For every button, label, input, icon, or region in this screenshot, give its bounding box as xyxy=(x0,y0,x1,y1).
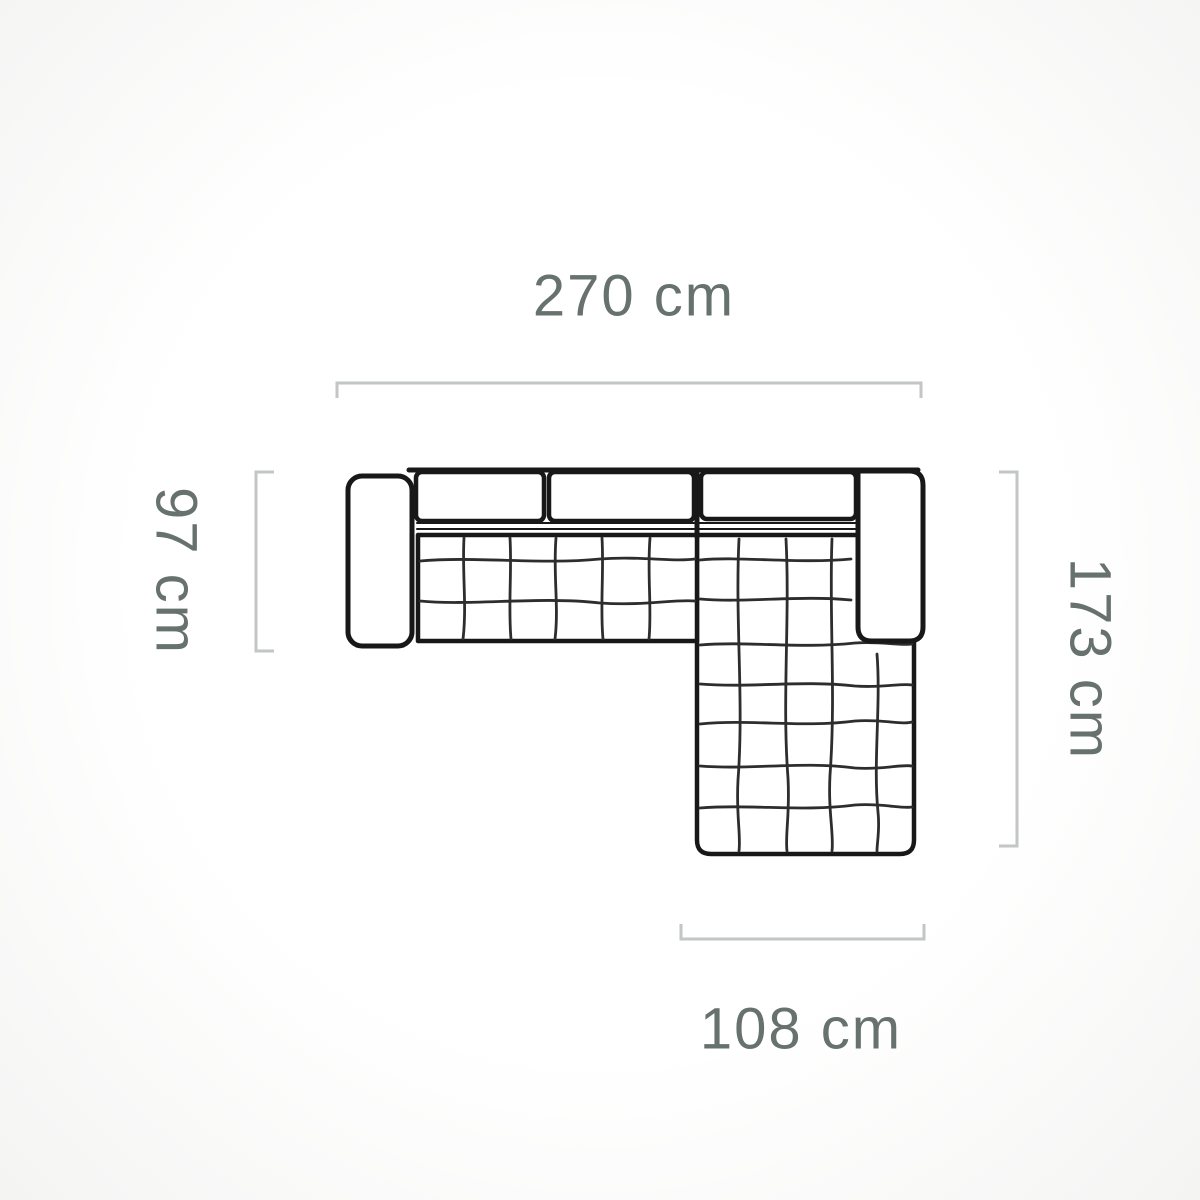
dimension-line-right xyxy=(999,472,1017,846)
quilt-line xyxy=(700,598,851,600)
left-armrest xyxy=(348,476,412,646)
dimension-line-bottom xyxy=(681,924,924,939)
dimension-label-top: 270 cm xyxy=(533,263,735,330)
quilt-line xyxy=(649,538,650,639)
quilt-line xyxy=(510,538,511,639)
main-seat xyxy=(418,535,697,641)
dimension-label-left: 97 cm xyxy=(143,487,210,655)
back-cushion-right xyxy=(701,472,856,519)
quilt-line xyxy=(602,538,603,639)
right-armrest xyxy=(858,471,923,641)
back-cushion-middle xyxy=(549,472,694,521)
quilt-line xyxy=(463,538,465,639)
dimension-line-top xyxy=(337,383,921,398)
dimension-label-right: 173 cm xyxy=(1057,558,1124,760)
dimension-label-bottom: 108 cm xyxy=(700,996,902,1063)
dimension-line-left xyxy=(256,472,274,651)
quilt-line xyxy=(555,538,556,639)
back-cushion-left xyxy=(416,472,544,521)
sofa-dimension-diagram: 270 cm 97 cm 173 cm 108 cm xyxy=(0,0,1200,1200)
